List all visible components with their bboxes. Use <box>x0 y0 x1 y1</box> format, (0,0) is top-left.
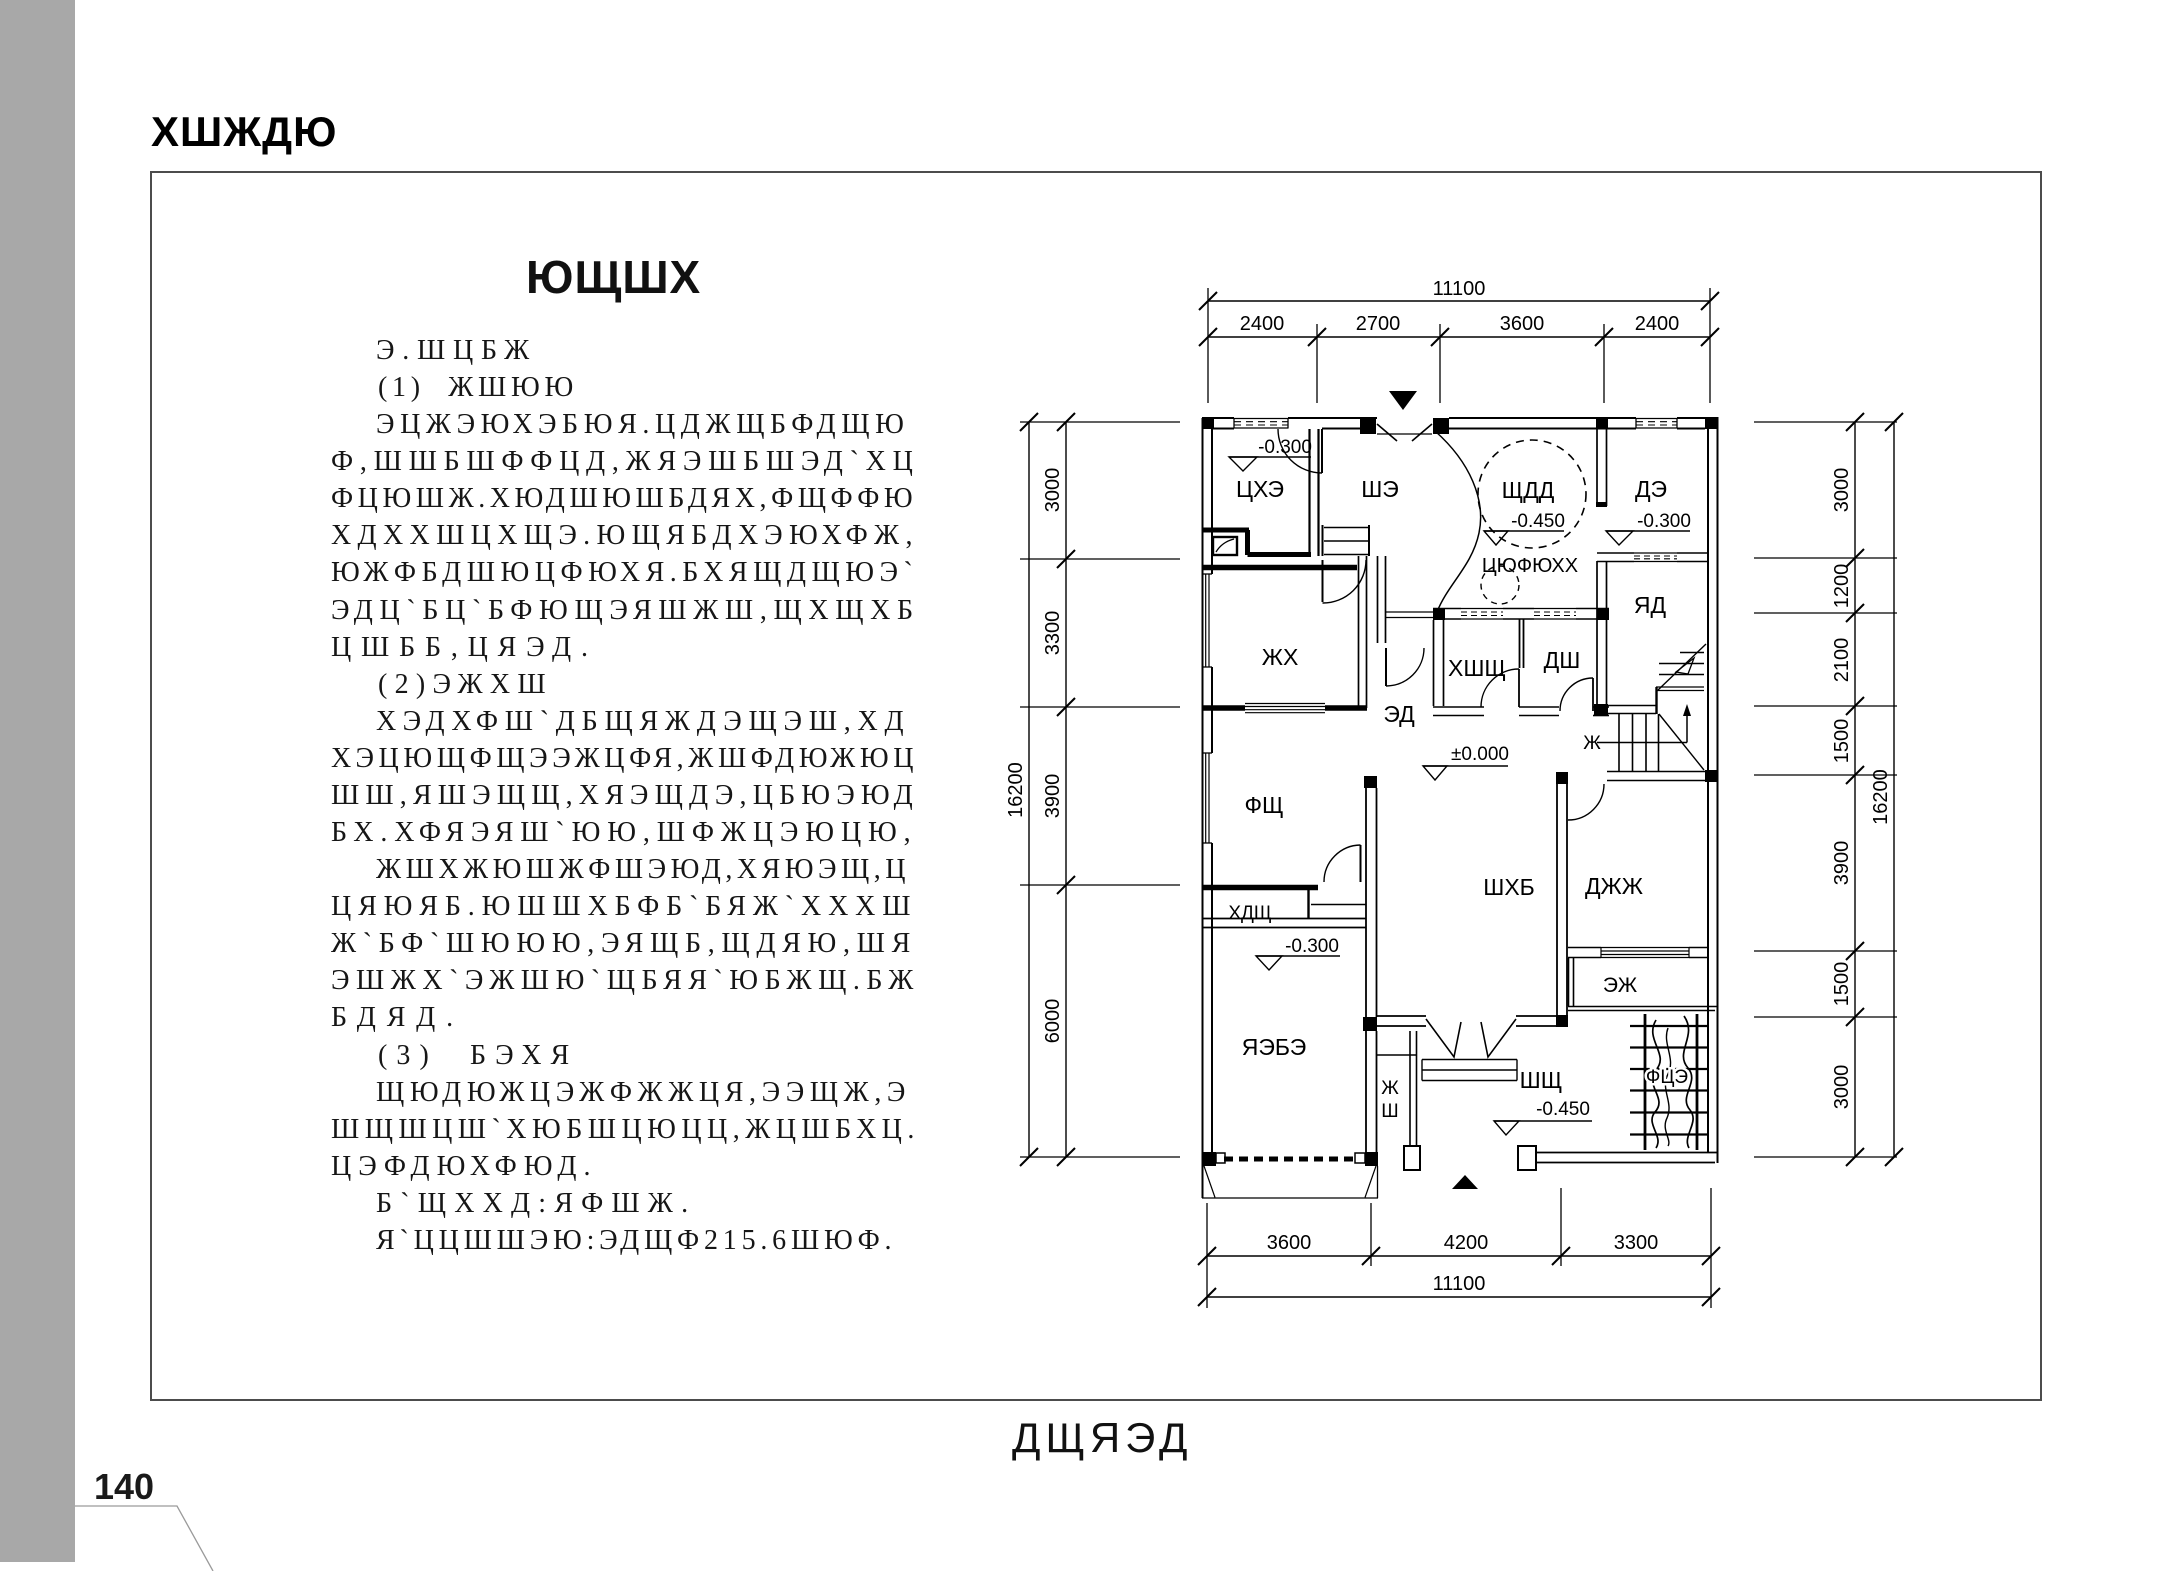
svg-text:3900: 3900 <box>1831 841 1853 886</box>
svg-text:ШХБ: ШХБ <box>1483 874 1535 900</box>
svg-text:-0.300: -0.300 <box>1285 936 1339 957</box>
svg-text:3000: 3000 <box>1042 468 1064 513</box>
svg-text:1200: 1200 <box>1831 564 1853 609</box>
svg-text:ДШ: ДШ <box>1544 647 1581 673</box>
svg-text:ЦХЭ: ЦХЭ <box>1236 476 1284 502</box>
svg-text:ФЦЭ: ФЦЭ <box>1646 1067 1688 1088</box>
svg-text:ЭЖ: ЭЖ <box>1603 974 1638 997</box>
svg-text:ЯЭБЭ: ЯЭБЭ <box>1242 1034 1307 1060</box>
svg-text:-0.450: -0.450 <box>1511 511 1565 532</box>
svg-text:3000: 3000 <box>1831 1065 1853 1110</box>
svg-text:ЦЮФЮХХ: ЦЮФЮХХ <box>1482 555 1578 577</box>
svg-text:Ж: Ж <box>1381 1078 1399 1099</box>
svg-text:Ш: Ш <box>1381 1101 1398 1122</box>
svg-text:ЩДД: ЩДД <box>1502 477 1555 503</box>
svg-text:11100: 11100 <box>1433 1273 1486 1295</box>
svg-text:ЖХ: ЖХ <box>1262 644 1299 670</box>
svg-text:3600: 3600 <box>1500 313 1545 335</box>
svg-text:-0.300: -0.300 <box>1637 511 1691 532</box>
svg-text:ХДЩ: ХДЩ <box>1228 903 1272 924</box>
svg-text:-0.300: -0.300 <box>1258 437 1312 458</box>
svg-text:ЭД: ЭД <box>1383 701 1415 727</box>
svg-text:ШЩ: ШЩ <box>1520 1067 1563 1093</box>
svg-text:3600: 3600 <box>1267 1232 1312 1254</box>
svg-text:2400: 2400 <box>1240 313 1285 335</box>
svg-text:ФЩ: ФЩ <box>1244 792 1283 818</box>
svg-text:ШЭ: ШЭ <box>1361 476 1399 502</box>
svg-text:3000: 3000 <box>1831 468 1853 513</box>
svg-text:ЯД: ЯД <box>1634 592 1667 618</box>
svg-text:ДЭ: ДЭ <box>1635 476 1667 502</box>
svg-text:±0.000: ±0.000 <box>1451 744 1509 765</box>
svg-text:3300: 3300 <box>1042 611 1064 656</box>
svg-text:2400: 2400 <box>1635 313 1680 335</box>
svg-text:-0.450: -0.450 <box>1536 1099 1590 1120</box>
svg-text:3900: 3900 <box>1042 774 1064 819</box>
svg-text:16200: 16200 <box>1870 769 1892 825</box>
svg-text:6000: 6000 <box>1042 999 1064 1044</box>
svg-text:1500: 1500 <box>1831 719 1853 764</box>
svg-text:4200: 4200 <box>1444 1232 1489 1254</box>
svg-text:ХШЩ: ХШЩ <box>1448 655 1506 681</box>
svg-text:2100: 2100 <box>1831 638 1853 683</box>
svg-text:Ж: Ж <box>1583 733 1601 754</box>
svg-text:1500: 1500 <box>1831 962 1853 1007</box>
svg-text:ДЖЖ: ДЖЖ <box>1585 873 1643 899</box>
svg-text:11100: 11100 <box>1433 278 1486 300</box>
svg-text:16200: 16200 <box>1005 762 1027 818</box>
svg-text:2700: 2700 <box>1356 313 1401 335</box>
svg-text:3300: 3300 <box>1614 1232 1659 1254</box>
